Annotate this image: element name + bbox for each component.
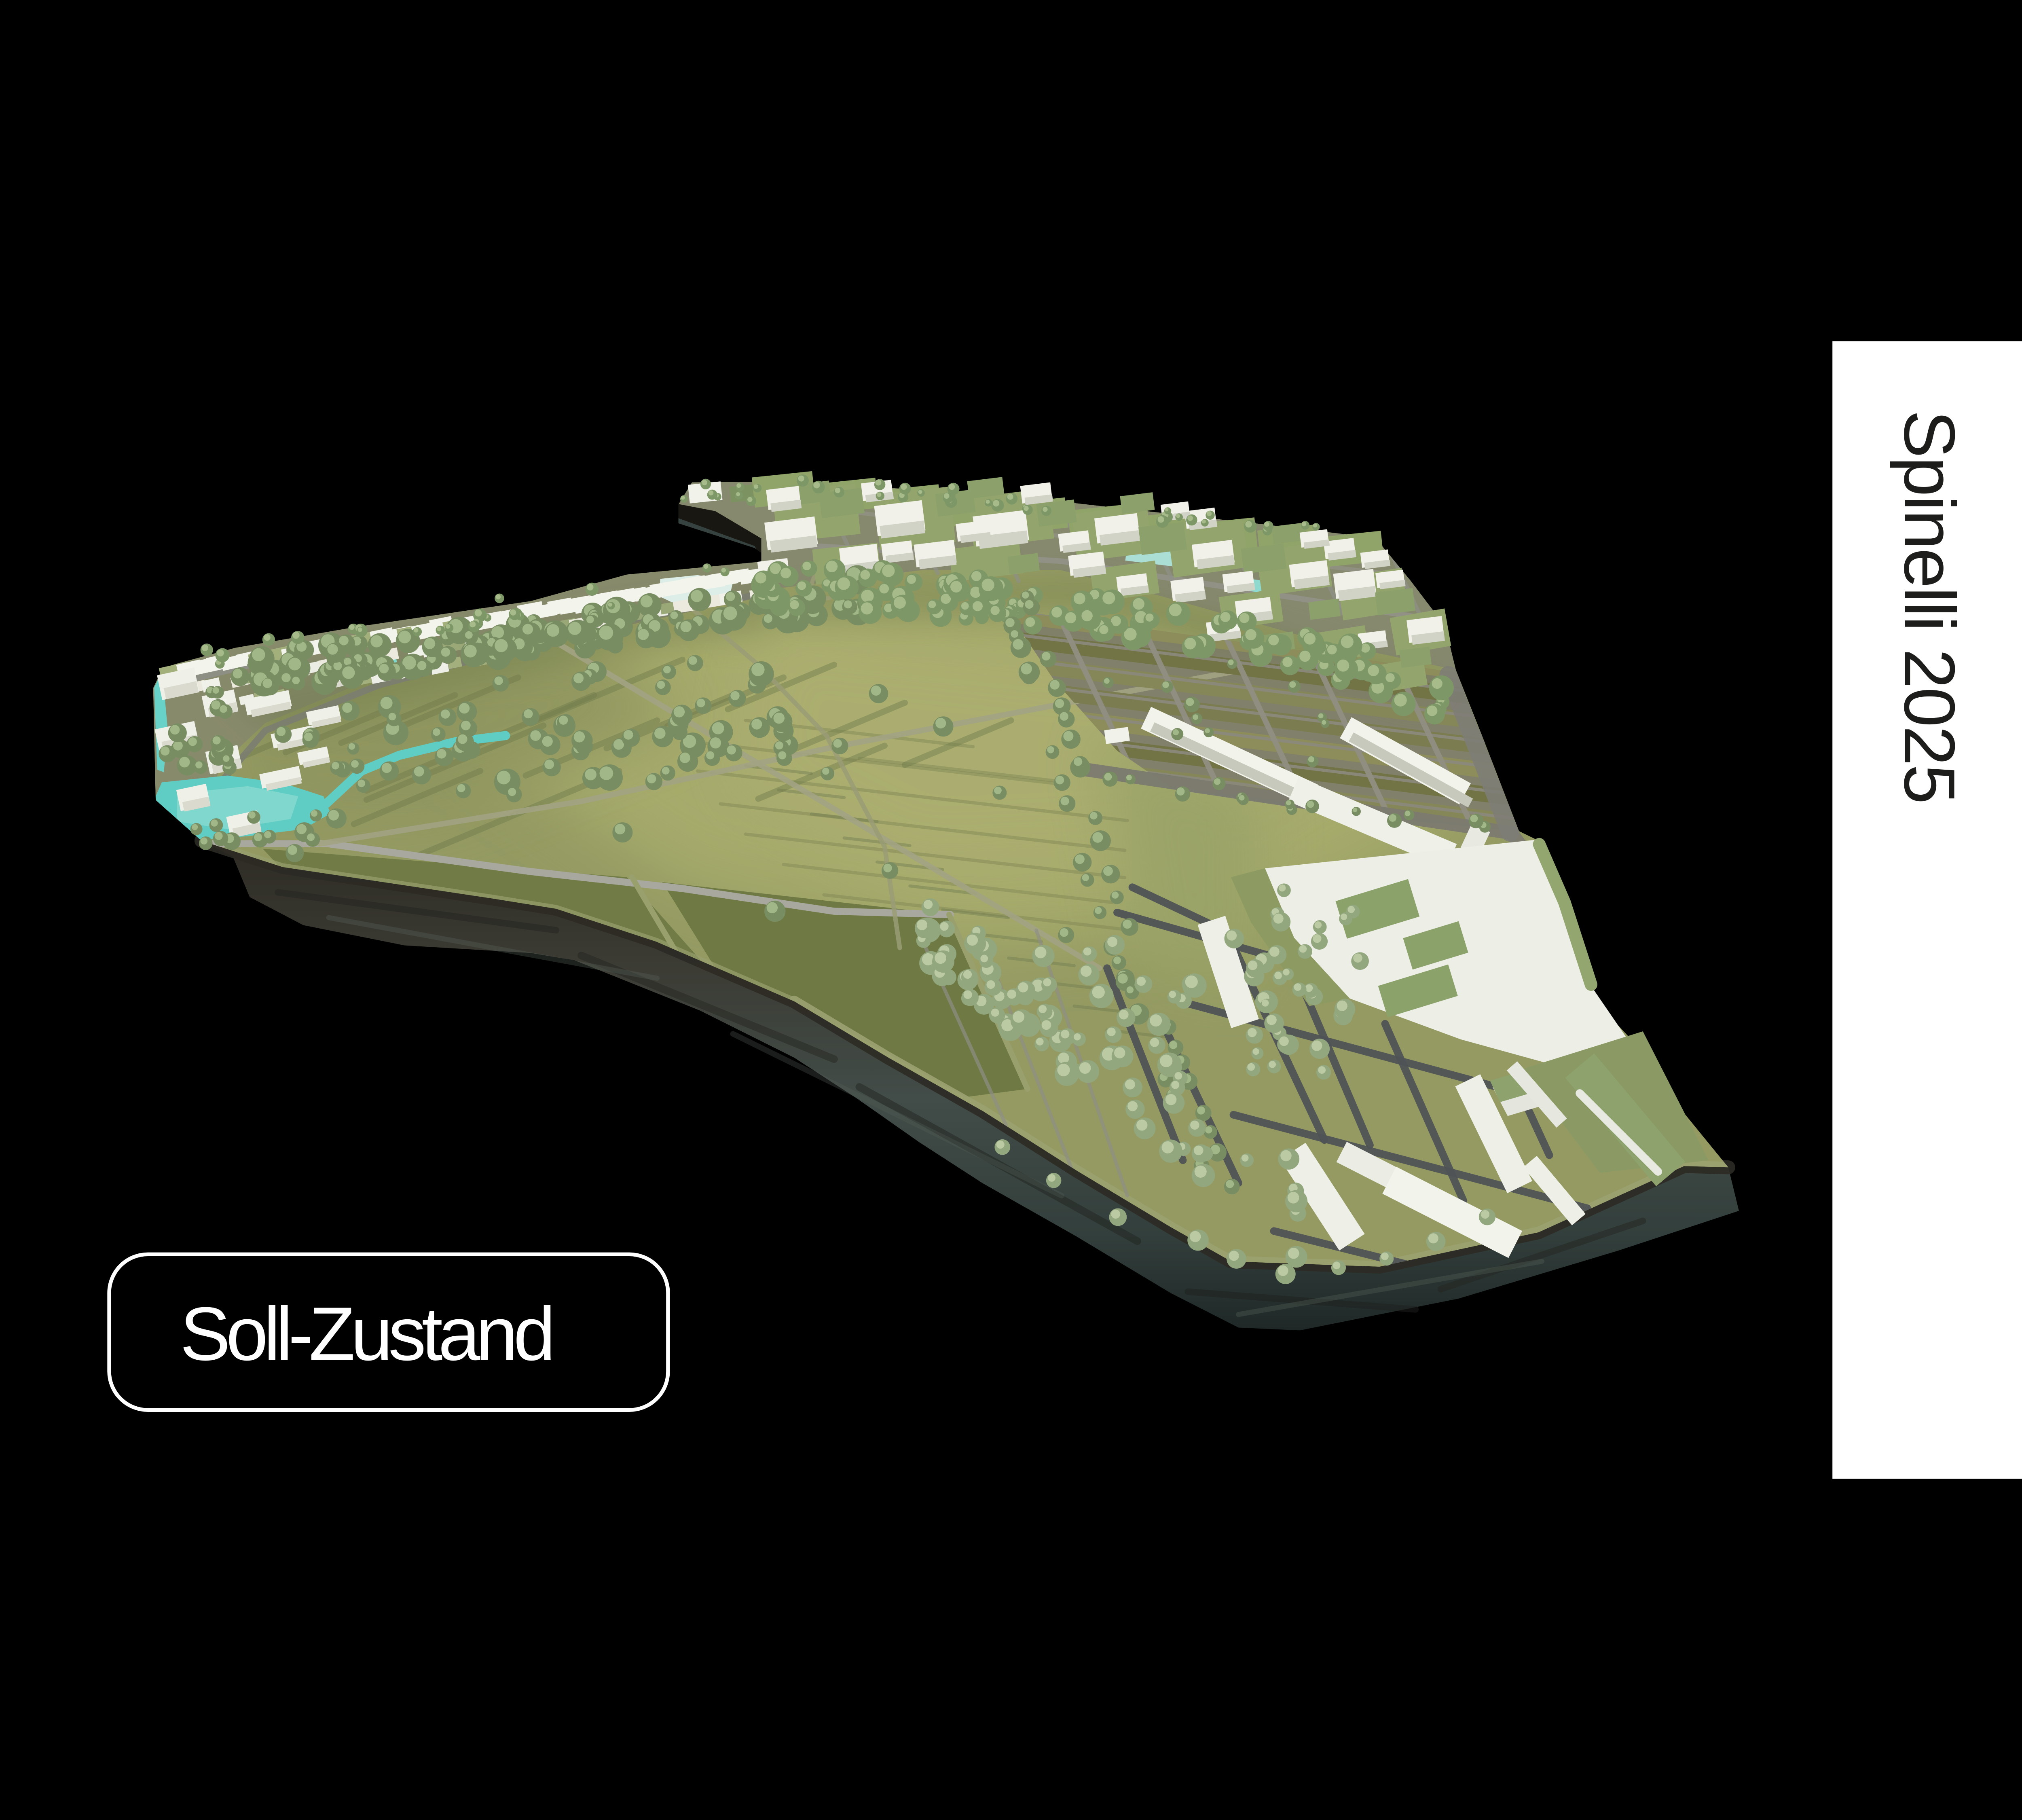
svg-text:Spinelli 2025: Spinelli 2025: [1889, 410, 1970, 803]
svg-text:Soll-Zustand: Soll-Zustand: [180, 1291, 551, 1376]
